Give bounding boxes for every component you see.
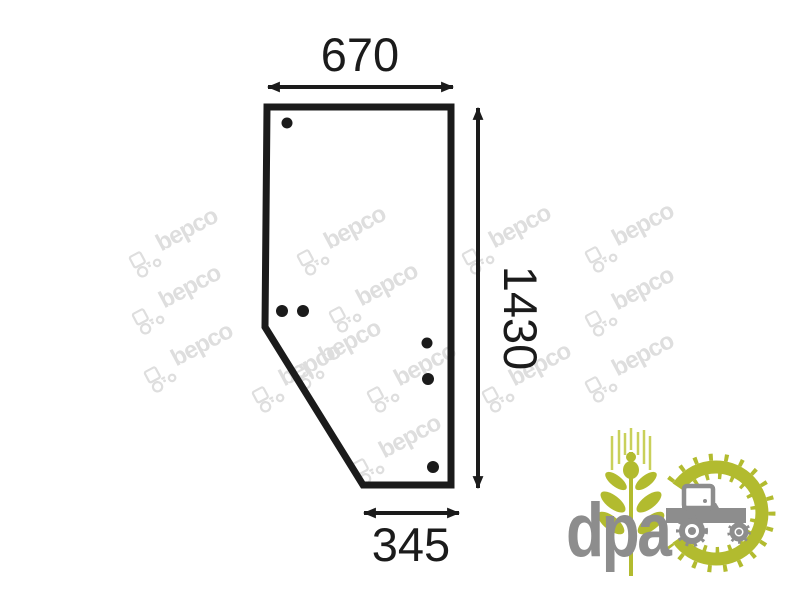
mounting-holes <box>276 118 439 474</box>
dpa-logo: dpa <box>540 415 800 600</box>
mounting-hole <box>427 461 439 473</box>
mounting-hole <box>276 305 288 317</box>
product-image: bepcobepcobepcobepcobepcobepcobepcobepco… <box>0 0 800 600</box>
dpa-logo-text: dpa <box>566 487 673 572</box>
mounting-hole <box>422 373 434 385</box>
top-width-label: 670 <box>321 28 399 81</box>
mounting-hole <box>282 118 293 129</box>
bottom-width-label: 345 <box>372 518 450 571</box>
mounting-hole <box>422 338 433 349</box>
glass-outline <box>265 107 451 485</box>
mounting-hole <box>297 305 309 317</box>
side-height-label: 1430 <box>494 266 547 371</box>
tractor-icon <box>666 486 749 545</box>
